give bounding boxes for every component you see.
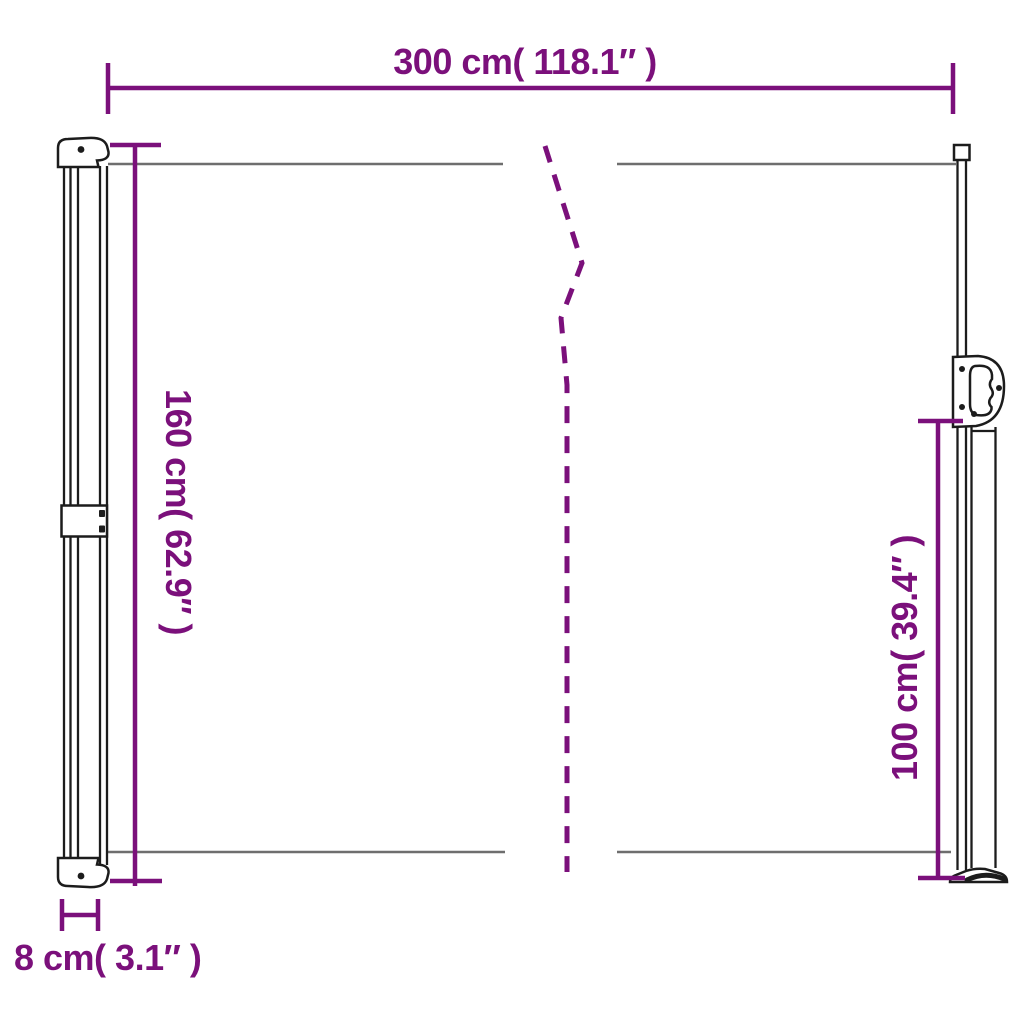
cassette-pole [58,138,109,887]
bottom-cap-screw [78,873,85,880]
fabric-edge-lines [108,164,956,852]
handle-grip-cutout [970,366,993,416]
depth-dimension-label: 8 cm( 3.1″ ) [14,938,201,978]
awning-dimension-diagram: 300 cm( 118.1″ ) 160 cm( 62.9″ ) 100 cm(… [0,0,1024,1024]
left-height-dimension-label: 160 cm( 62.9″ ) [158,389,198,635]
right-height-dimension-label: 100 cm( 39.4″ ) [885,535,925,781]
fabric-break-line [545,146,582,872]
bracket-bolt [99,526,105,533]
top-cap-screw [78,146,85,153]
handle-screw [996,385,1002,391]
cassette-top-cap [58,138,109,167]
end-rail [950,145,1007,882]
bracket-bolt [99,510,105,517]
handle-screw [971,411,977,417]
left-height-dimension-line [110,145,162,886]
handle-screw [959,366,965,372]
handle-screw [959,404,965,410]
width-dimension-label: 300 cm( 118.1″ ) [393,42,656,82]
diagram-drawing [0,0,1024,1024]
rail-top-cap [954,145,970,160]
depth-dimension-line [62,899,98,931]
